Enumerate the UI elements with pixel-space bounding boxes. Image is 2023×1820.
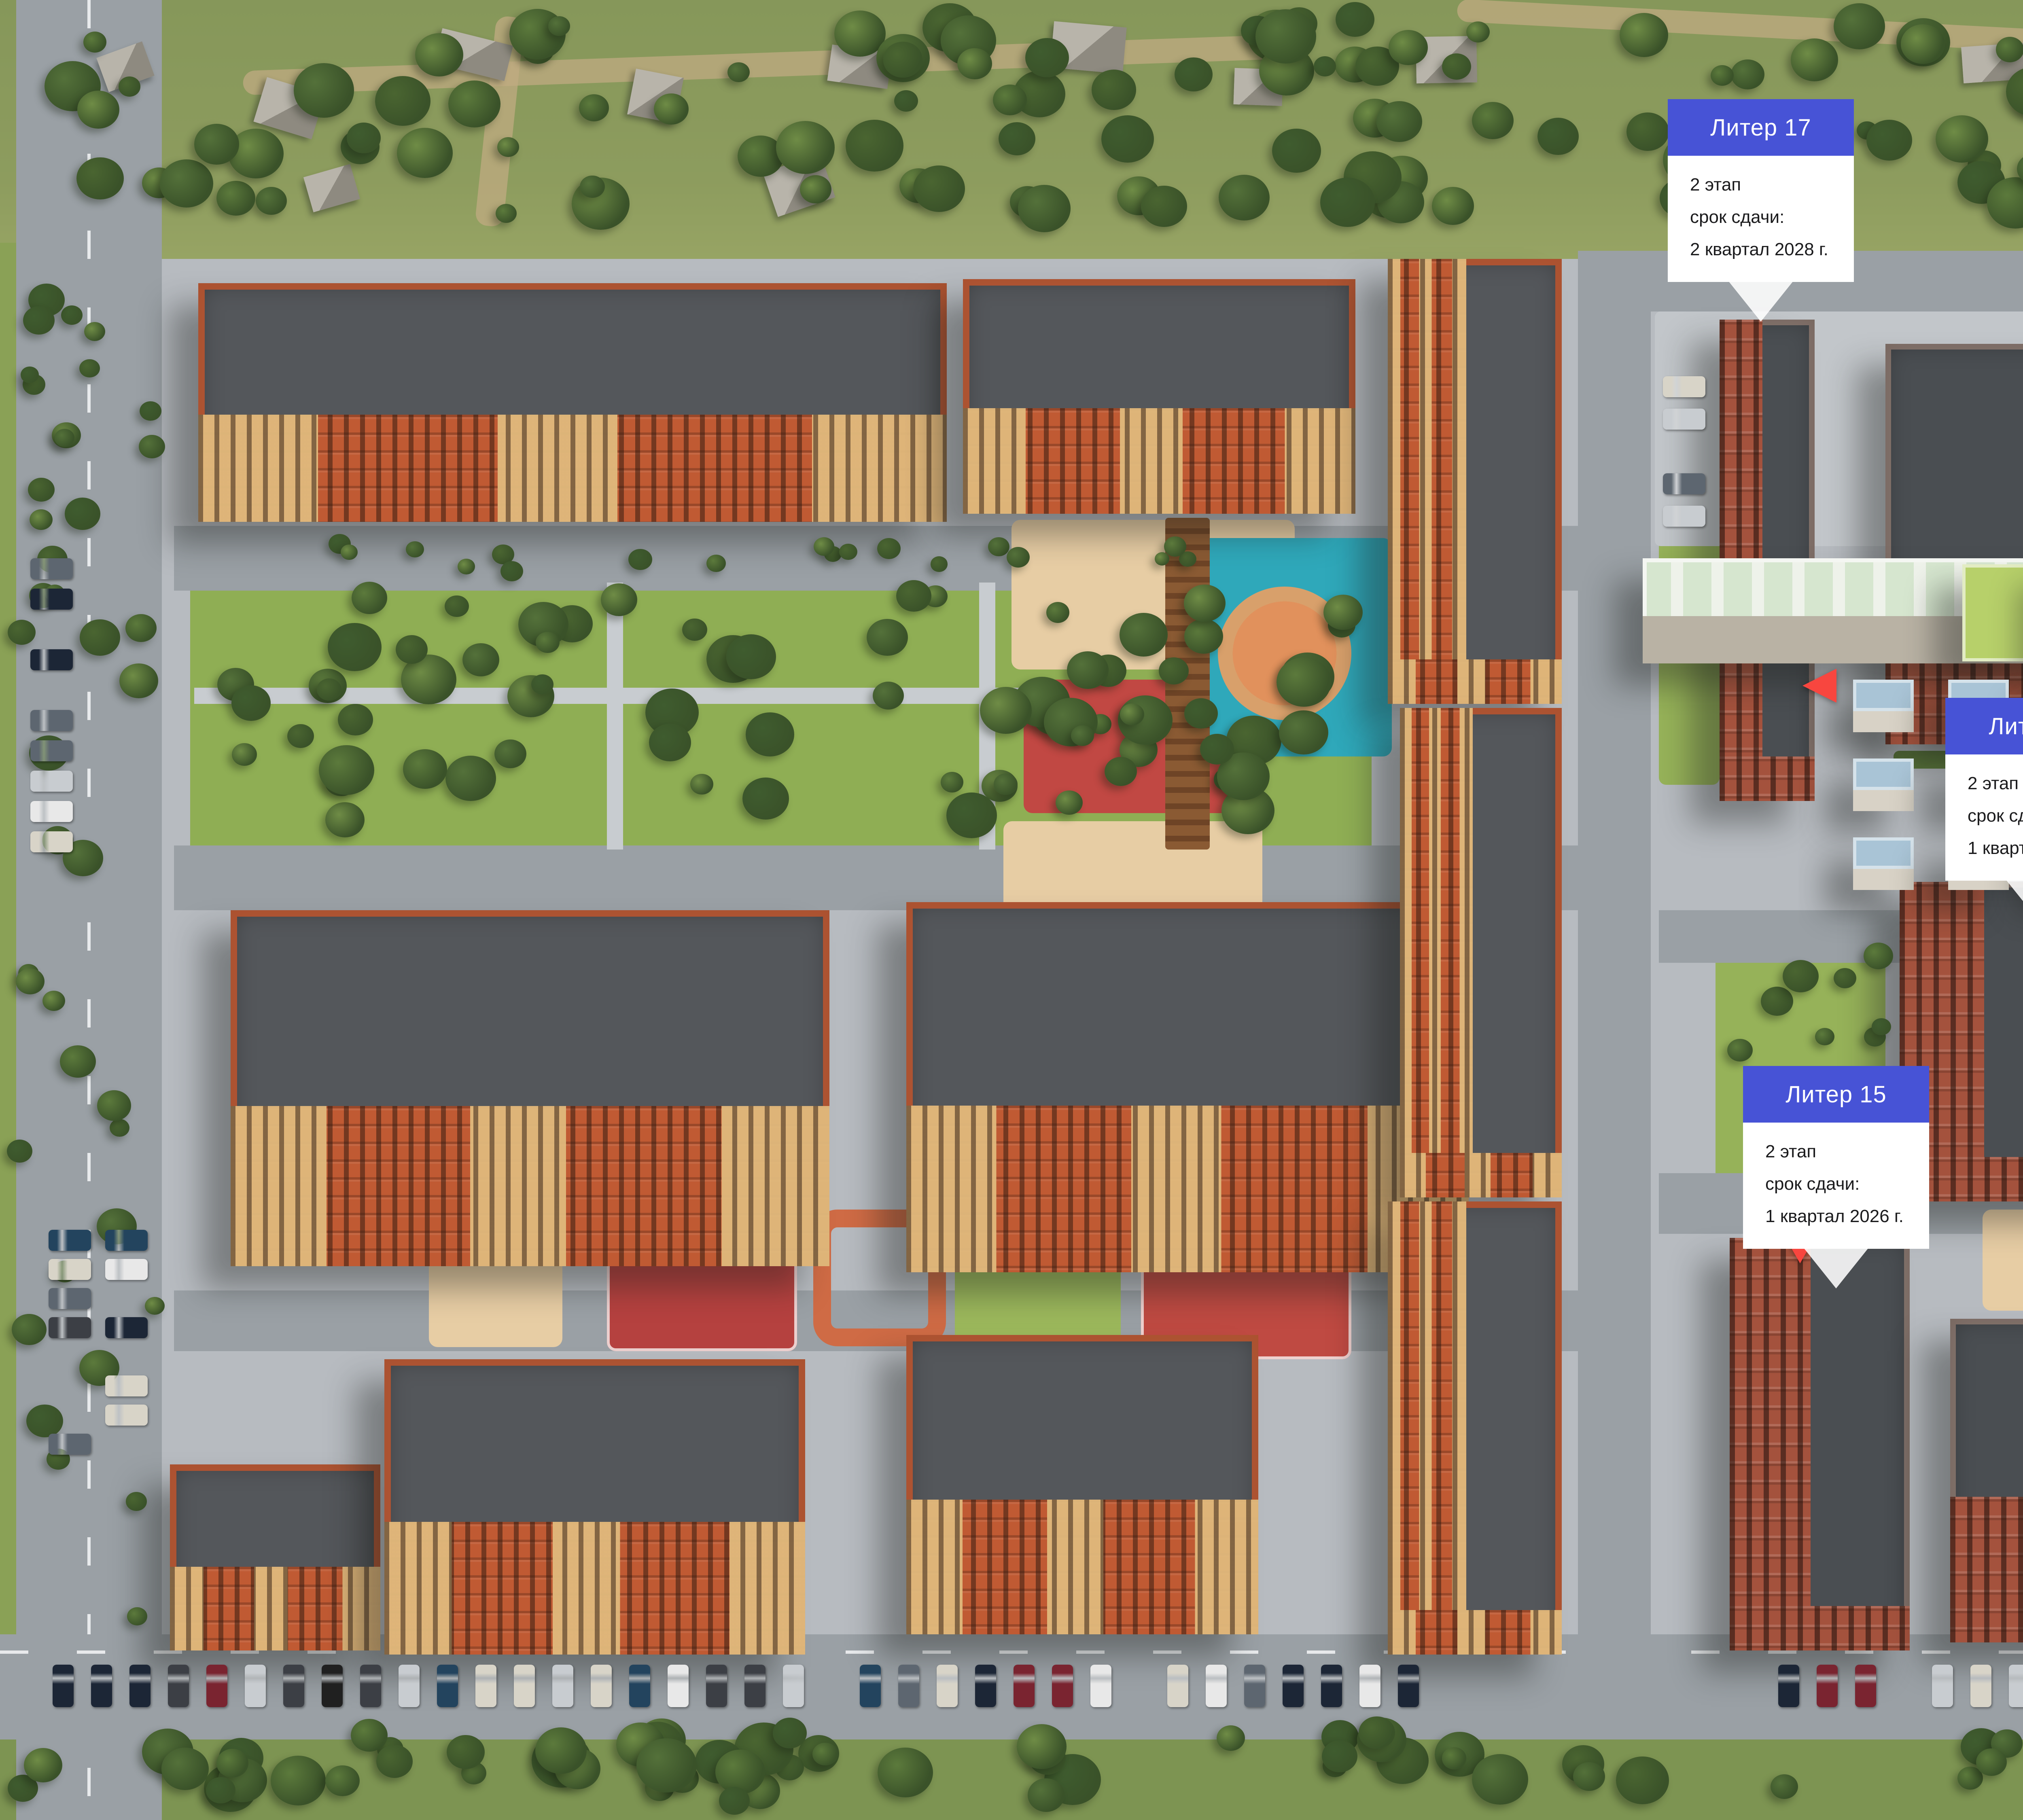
tree — [61, 305, 83, 325]
tree — [1159, 657, 1189, 684]
callout-liter-17[interactable]: Литер 17 2 этап срок сдачи: 2 квартал 20… — [1668, 99, 1854, 282]
tree — [80, 619, 120, 655]
tree — [287, 724, 314, 748]
tree — [294, 63, 354, 117]
tree — [317, 678, 341, 701]
tree — [500, 561, 523, 581]
building-roof — [1853, 680, 1914, 711]
tree — [403, 749, 447, 789]
parked-car — [1398, 1665, 1419, 1707]
tree — [352, 582, 387, 614]
parked-car — [1663, 473, 1705, 494]
callout-title: Литер 11 — [1945, 698, 2023, 754]
building-facade — [198, 415, 947, 522]
building-facade — [1400, 1153, 1562, 1197]
tree — [42, 991, 65, 1011]
tree — [1620, 13, 1669, 57]
tree — [690, 774, 713, 795]
tree — [1771, 1774, 1798, 1799]
tree — [812, 1743, 838, 1765]
tree — [1783, 960, 1819, 992]
kindergarten-building — [1962, 564, 2023, 661]
tree — [1537, 118, 1579, 155]
parked-car — [399, 1665, 420, 1707]
parked-car — [860, 1665, 881, 1707]
tree — [23, 306, 54, 335]
tree — [161, 1748, 209, 1790]
tree — [497, 137, 519, 157]
parked-car — [744, 1665, 766, 1707]
parked-car — [1663, 506, 1705, 527]
tree — [396, 635, 428, 664]
kindergarten-pavilion — [1853, 759, 1914, 811]
tree — [1200, 734, 1234, 765]
tree — [1976, 1748, 2007, 1776]
tree — [462, 643, 499, 676]
callout-title: Литер 15 — [1743, 1066, 1929, 1123]
parked-car — [30, 771, 73, 792]
building-phase1-f — [384, 1359, 805, 1655]
parked-car — [1778, 1665, 1799, 1707]
tree — [1711, 65, 1734, 86]
building-roof — [1962, 564, 2023, 661]
tree — [719, 1787, 750, 1815]
tree — [913, 165, 965, 212]
tree — [1028, 1778, 1065, 1812]
tree — [839, 544, 857, 560]
tree — [397, 128, 453, 178]
tree — [649, 724, 691, 761]
callout-stage: 2 этап — [1968, 767, 2023, 800]
callout-tail-icon — [1804, 1248, 1868, 1288]
parked-car — [514, 1665, 535, 1707]
tree — [1018, 185, 1071, 232]
building-facade — [1388, 659, 1562, 704]
kindergarten-pavilion — [1853, 680, 1914, 732]
parked-car — [206, 1665, 227, 1707]
tree — [1727, 1039, 1752, 1061]
road — [1578, 251, 1651, 1659]
parked-car — [1090, 1665, 1111, 1707]
tree — [139, 435, 165, 458]
entrance-marker-icon — [1802, 669, 1836, 703]
parked-car — [129, 1665, 151, 1707]
tree — [867, 619, 908, 656]
tree — [21, 367, 39, 383]
parked-car — [105, 1317, 148, 1338]
tree — [628, 549, 652, 570]
building-facade — [1388, 259, 1466, 704]
tree — [26, 1405, 63, 1437]
parked-car — [1855, 1665, 1876, 1707]
tree — [1120, 613, 1168, 656]
tree — [216, 1749, 248, 1778]
tree — [896, 580, 931, 612]
tree — [1184, 619, 1223, 654]
parked-car — [1663, 409, 1705, 430]
parked-car — [91, 1665, 112, 1707]
tree — [338, 704, 373, 735]
tree — [231, 685, 271, 720]
tree — [1389, 30, 1427, 65]
tree — [1323, 595, 1363, 630]
tree — [127, 1607, 147, 1625]
building-liter-15[interactable] — [1730, 1238, 1910, 1651]
tree — [980, 687, 1032, 733]
parked-car — [49, 1259, 91, 1280]
road — [174, 845, 1578, 910]
tree — [447, 1735, 484, 1769]
tree — [55, 429, 75, 447]
tree — [1573, 1762, 1605, 1791]
parked-car — [1359, 1665, 1380, 1707]
building-phase1-g — [906, 1335, 1258, 1634]
building-phase1-h — [1388, 259, 1562, 704]
tree — [325, 1765, 360, 1796]
tree — [883, 42, 923, 77]
road-marking — [87, 0, 91, 1820]
tree — [957, 48, 992, 79]
building-facade — [963, 408, 1355, 514]
tree — [376, 1745, 413, 1778]
callout-stage: 2 этап — [1690, 169, 1842, 201]
parked-car — [245, 1665, 266, 1707]
parked-car — [322, 1665, 343, 1707]
tree — [1105, 757, 1137, 786]
tree — [548, 16, 570, 36]
tree — [1359, 1716, 1395, 1749]
building-facade — [1720, 756, 1815, 801]
tree — [873, 682, 904, 710]
tree — [328, 623, 382, 672]
tree — [1815, 1028, 1834, 1045]
building-facade — [906, 1106, 1469, 1272]
parked-car — [1244, 1665, 1265, 1707]
parked-car — [30, 740, 73, 761]
tree — [800, 175, 831, 203]
parked-car — [168, 1665, 189, 1707]
tree — [1834, 3, 1885, 49]
tree — [216, 181, 255, 216]
callout-deadline: 1 квартал 2026 г. — [1765, 1200, 1917, 1233]
tree — [1472, 1754, 1528, 1805]
parked-car — [437, 1665, 458, 1707]
parked-car — [49, 1317, 91, 1338]
building-facade — [231, 1106, 829, 1266]
tree — [126, 1492, 147, 1511]
tree — [1442, 53, 1471, 80]
tree — [1092, 70, 1136, 110]
building-roof — [1853, 837, 1914, 869]
tree — [16, 968, 45, 994]
tree — [125, 614, 156, 642]
parked-car — [1167, 1665, 1188, 1707]
callout-liter-15[interactable]: Литер 15 2 этап срок сдачи: 1 квартал 20… — [1743, 1066, 1929, 1249]
tree — [993, 85, 1027, 115]
tree — [1872, 1018, 1891, 1035]
tree — [494, 739, 526, 768]
parked-car — [591, 1665, 612, 1707]
parked-car — [783, 1665, 804, 1707]
building-facade — [384, 1522, 805, 1655]
tree — [1120, 703, 1145, 726]
tree — [931, 556, 948, 572]
tree — [256, 187, 287, 215]
parked-car — [475, 1665, 496, 1707]
tree — [1314, 56, 1336, 76]
parked-car — [1970, 1665, 1991, 1707]
tree — [1791, 38, 1838, 81]
parked-car — [30, 649, 73, 670]
tree — [60, 1045, 95, 1078]
tree — [1731, 59, 1764, 90]
tree — [375, 76, 430, 126]
parked-car — [49, 1434, 91, 1455]
building-facade — [170, 1567, 380, 1651]
tree — [814, 537, 834, 556]
tree — [1272, 129, 1321, 173]
callout-title: Литер 17 — [1668, 99, 1854, 156]
tree — [445, 595, 469, 617]
building-phase1-b — [963, 279, 1355, 514]
tree — [1336, 2, 1374, 37]
building-facade — [906, 1500, 1258, 1634]
parked-car — [1321, 1665, 1342, 1707]
road-marking — [0, 1651, 2023, 1654]
tree — [894, 90, 918, 112]
parked-car — [105, 1375, 148, 1396]
building-phase1-e — [170, 1464, 380, 1651]
parked-car — [937, 1665, 958, 1707]
tree — [79, 359, 100, 377]
tree — [232, 743, 257, 765]
tree — [347, 123, 381, 153]
tree — [83, 32, 106, 52]
tree — [160, 159, 213, 208]
tree — [654, 93, 689, 125]
tree — [76, 157, 123, 200]
building-phase1-d — [906, 902, 1469, 1272]
tree — [1007, 547, 1030, 568]
tree — [1936, 115, 1989, 163]
callout-stage: 2 этап — [1765, 1136, 1917, 1168]
parked-car — [105, 1259, 148, 1280]
building-phase1-c — [231, 910, 829, 1266]
tree — [636, 1738, 696, 1792]
tree — [119, 663, 158, 698]
parked-car — [30, 801, 73, 822]
tree — [601, 583, 637, 616]
parked-car — [2009, 1665, 2023, 1707]
parked-car — [1206, 1665, 1227, 1707]
parked-car — [105, 1230, 148, 1251]
tree — [531, 674, 553, 695]
tree — [1901, 24, 1945, 64]
tree — [776, 121, 835, 174]
tree — [448, 81, 500, 127]
tree — [726, 634, 776, 679]
tree — [1071, 725, 1094, 746]
tree — [458, 559, 475, 574]
tree — [406, 541, 424, 557]
tree — [140, 401, 161, 421]
building-facade — [1388, 1610, 1562, 1655]
callout-tail-icon — [1728, 281, 1793, 322]
tree — [1017, 1724, 1067, 1769]
tree — [773, 1718, 807, 1748]
parked-car — [706, 1665, 727, 1707]
tree — [535, 1727, 587, 1774]
tree — [846, 120, 903, 172]
building-facade — [1950, 1497, 2023, 1642]
tree — [1101, 115, 1154, 163]
parked-car — [1817, 1665, 1838, 1707]
callout-liter-11[interactable]: Литер 11 2 этап срок сдачи: 1 квартал 20… — [1945, 698, 2023, 881]
tree — [1277, 657, 1331, 707]
building-roof — [1853, 759, 1914, 790]
tree — [65, 498, 100, 530]
tree — [1219, 175, 1270, 220]
tree — [1866, 120, 1912, 161]
callout-deadline: 1 квартал 2026 г. — [1968, 832, 2023, 864]
tree — [97, 1090, 131, 1121]
tree — [1255, 9, 1316, 64]
tree — [1626, 112, 1669, 151]
tree — [24, 1748, 62, 1782]
callout-deadline-label: срок сдачи: — [1765, 1168, 1917, 1200]
building-phase1-a — [198, 283, 947, 522]
tree — [1155, 552, 1169, 566]
tree — [8, 620, 36, 645]
tree — [194, 124, 240, 165]
parked-car — [30, 831, 73, 852]
parked-car — [53, 1665, 74, 1707]
playground-sand — [1983, 1210, 2023, 1311]
parked-car — [30, 710, 73, 731]
kindergarten-pavilion — [1853, 837, 1914, 890]
tree — [682, 619, 707, 641]
tree — [1864, 943, 1893, 969]
tree — [727, 62, 750, 82]
tree — [1141, 186, 1187, 227]
parked-car — [975, 1665, 996, 1707]
road — [16, 0, 162, 1820]
parked-car — [360, 1665, 381, 1707]
tree — [878, 1748, 933, 1797]
footpath — [607, 583, 623, 850]
tree — [746, 712, 795, 756]
building-facade — [1388, 1201, 1466, 1655]
parked-car — [552, 1665, 573, 1707]
parked-car — [1663, 376, 1705, 397]
tree — [1616, 1756, 1669, 1804]
callout-deadline-label: срок сдачи: — [1968, 800, 2023, 832]
callout-deadline: 2 квартал 2028 г. — [1690, 233, 1842, 266]
parked-car — [30, 589, 73, 610]
tree — [580, 176, 604, 198]
tree — [1279, 710, 1328, 755]
tree — [536, 632, 559, 653]
building-liter-14[interactable] — [1950, 1319, 2023, 1642]
tree — [999, 122, 1035, 155]
parked-car — [49, 1230, 91, 1251]
callout-tail-icon — [2006, 880, 2023, 920]
tree — [877, 538, 901, 559]
building-phase1-i — [1400, 708, 1562, 1197]
tree — [325, 802, 365, 837]
building-facade — [1730, 1238, 1811, 1651]
building-facade — [1730, 1606, 1910, 1651]
parked-car — [668, 1665, 689, 1707]
building-facade — [1853, 711, 1914, 732]
tree — [12, 1314, 47, 1345]
parked-car — [30, 558, 73, 579]
tree — [77, 91, 119, 129]
parked-car — [1014, 1665, 1035, 1707]
tree — [119, 76, 140, 96]
building-facade — [1400, 708, 1473, 1197]
tree — [1175, 57, 1213, 91]
tree — [415, 33, 463, 76]
tree — [1834, 968, 1856, 988]
tree — [1432, 187, 1474, 225]
tree — [988, 537, 1009, 556]
tree — [1046, 602, 1069, 623]
tree — [271, 1756, 326, 1805]
tree — [1320, 178, 1375, 227]
tree — [1322, 1740, 1357, 1772]
tree — [1056, 790, 1083, 815]
parked-car — [1932, 1665, 1953, 1707]
building-phase1-j — [1388, 1201, 1562, 1655]
tree — [206, 1777, 235, 1803]
tree — [1442, 1747, 1467, 1769]
tree — [445, 756, 496, 801]
tree — [1184, 585, 1225, 622]
tree — [1466, 21, 1490, 42]
masterplan-aerial-view: Литер 17 2 этап срок сдачи: 2 квартал 20… — [0, 0, 2023, 1820]
tree — [341, 545, 358, 560]
parked-car — [1283, 1665, 1304, 1707]
tree — [7, 1140, 32, 1163]
tree — [1025, 38, 1069, 77]
tree — [1067, 651, 1109, 689]
parked-car — [49, 1288, 91, 1309]
tree — [28, 478, 55, 502]
tree — [319, 745, 374, 795]
callout-deadline-label: срок сдачи: — [1690, 201, 1842, 233]
tree — [1184, 698, 1218, 729]
tree — [579, 94, 609, 121]
tree — [1376, 101, 1422, 142]
tree — [1472, 102, 1513, 139]
parked-car — [898, 1665, 919, 1707]
parked-car — [629, 1665, 650, 1707]
tree — [496, 204, 517, 223]
tree — [946, 792, 997, 838]
tree — [706, 555, 726, 572]
parked-car — [283, 1665, 304, 1707]
tree — [1996, 37, 2023, 62]
building-facade — [1853, 869, 1914, 890]
tree — [742, 778, 789, 820]
parked-car — [105, 1405, 148, 1426]
tree — [1217, 1725, 1245, 1751]
parked-car — [1052, 1665, 1073, 1707]
building-facade — [1853, 790, 1914, 811]
tree — [941, 772, 964, 792]
tree — [351, 1719, 387, 1752]
